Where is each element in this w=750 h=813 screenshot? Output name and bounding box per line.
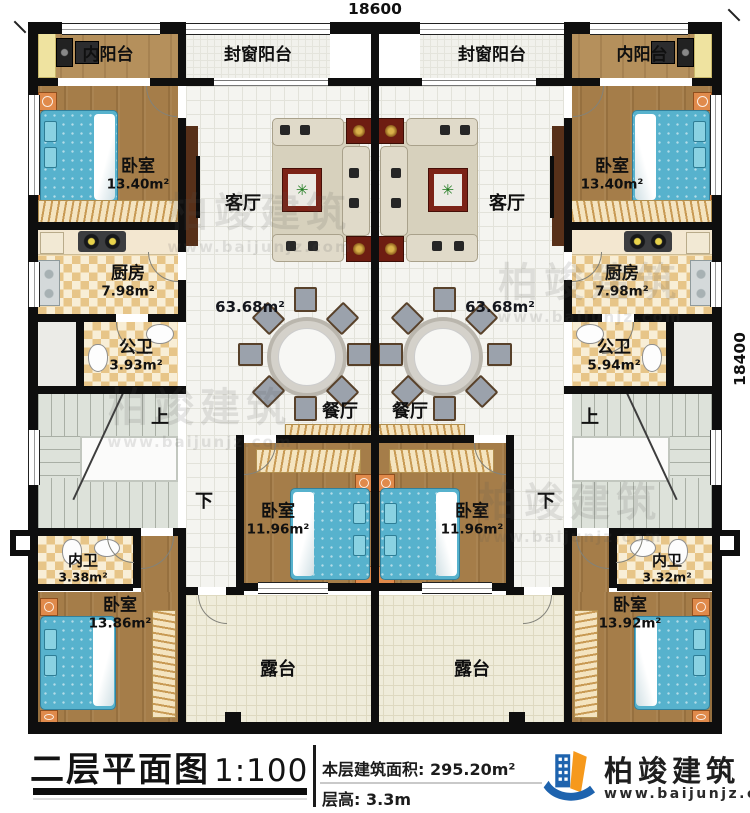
wall xyxy=(133,536,141,588)
wall-pier xyxy=(509,712,525,724)
wall xyxy=(173,528,186,536)
title-underline-light xyxy=(33,798,307,800)
washing-machine-icon xyxy=(56,38,73,67)
wall xyxy=(236,583,258,591)
wall xyxy=(178,280,186,314)
wall xyxy=(492,583,514,591)
wall xyxy=(536,78,564,86)
wall xyxy=(38,78,58,86)
wall xyxy=(564,314,602,322)
side-table xyxy=(378,236,404,262)
wall xyxy=(328,78,375,86)
nightstand xyxy=(692,598,710,616)
bed xyxy=(632,110,710,204)
wall xyxy=(76,322,84,386)
floor-height-row: 层高: 3.3m xyxy=(322,786,411,810)
window xyxy=(62,23,160,35)
plan-scale: 1:100 xyxy=(214,753,308,789)
wall xyxy=(28,386,186,394)
window xyxy=(590,23,688,35)
floor-area-row: 本层建筑面积: 295.20m² xyxy=(322,756,515,780)
wall xyxy=(564,280,572,314)
kitchen-sink-icon xyxy=(38,260,60,306)
wall xyxy=(375,435,474,443)
stairs-down-label: 下 xyxy=(195,491,213,513)
balcony-cabinet xyxy=(38,32,56,78)
stove-icon xyxy=(78,231,126,252)
side-table xyxy=(346,236,372,262)
wall xyxy=(28,722,375,734)
room-label-ensuite-bath: 内卫 3.38m² xyxy=(58,552,107,585)
wall xyxy=(328,583,375,591)
sofa xyxy=(406,234,478,262)
sofa-pillow xyxy=(349,198,359,208)
wall xyxy=(564,536,572,732)
wall xyxy=(38,314,116,322)
company-logo-icon xyxy=(542,746,600,804)
room-label-inner-balcony: 内阳台 xyxy=(617,45,668,65)
stairs-steps xyxy=(670,436,712,478)
dimension-tick xyxy=(14,21,27,34)
nightstand xyxy=(38,92,57,111)
sofa-pillow xyxy=(454,241,464,251)
sofa-pillow xyxy=(391,168,401,178)
window xyxy=(710,262,722,307)
sofa-pillow xyxy=(308,241,318,251)
window xyxy=(28,95,40,195)
stairs-down-label: 下 xyxy=(537,491,555,513)
coffee-table: ✳ xyxy=(282,168,322,212)
toilet-icon xyxy=(642,344,662,372)
side-table xyxy=(378,118,404,144)
wall xyxy=(178,118,186,230)
stairs-up-label: 上 xyxy=(581,407,599,429)
plant-icon: ✳ xyxy=(442,181,455,199)
window xyxy=(710,430,722,485)
sofa-pillow xyxy=(391,198,401,208)
dimension-top: 18600 xyxy=(300,0,450,18)
stairs-steps xyxy=(38,478,178,528)
company-url: www.baijunjz.com xyxy=(604,786,750,802)
sofa-pillow xyxy=(300,125,310,135)
wall-pier xyxy=(225,712,241,724)
room-label-floor-area: 63.68m² xyxy=(215,298,285,316)
wall xyxy=(564,118,572,230)
wall xyxy=(186,587,198,595)
wall xyxy=(28,528,141,536)
plan-title-text: 二层平面图 xyxy=(30,750,210,790)
sofa-pillow xyxy=(349,168,359,178)
wall xyxy=(564,222,712,230)
floor-area-value: 295.20m² xyxy=(430,760,515,779)
wall xyxy=(609,528,722,536)
room-label-inner-balcony: 内阳台 xyxy=(83,45,134,65)
balcony-cabinet xyxy=(694,32,712,78)
room-label-public-bath: 公卫 3.93m² xyxy=(109,338,162,375)
sofa-pillow xyxy=(280,125,290,135)
wall xyxy=(375,583,422,591)
wall xyxy=(506,435,514,595)
unit-left: ✳ xyxy=(28,22,375,740)
room-label-dining: 餐厅 xyxy=(392,401,428,423)
room-label-window-balcony: 封窗阳台 xyxy=(224,45,292,65)
room-label-kitchen: 厨房 7.98m² xyxy=(101,264,154,301)
party-wall xyxy=(371,22,379,734)
room-label-public-bath: 公卫 5.94m² xyxy=(587,338,640,375)
room-label-window-balcony: 封窗阳台 xyxy=(458,45,526,65)
wall xyxy=(375,78,422,86)
wall xyxy=(178,230,186,252)
wall xyxy=(564,386,722,394)
dining-chair xyxy=(294,396,317,421)
wall xyxy=(148,314,186,322)
room-label-dining: 餐厅 xyxy=(322,401,358,423)
toilet-icon xyxy=(88,344,108,372)
kitchen-sink-icon xyxy=(690,260,712,306)
wall xyxy=(514,587,524,595)
sliding-window xyxy=(422,80,536,86)
dimension-right: 18400 xyxy=(731,321,749,397)
company-name: 柏竣建筑 xyxy=(604,748,740,790)
wall xyxy=(564,230,572,252)
coffee-table: ✳ xyxy=(428,168,468,212)
window xyxy=(258,582,328,594)
stairs-steps xyxy=(572,478,712,528)
wall xyxy=(564,528,577,536)
wall xyxy=(692,78,712,86)
title-underline xyxy=(33,788,307,795)
wall xyxy=(226,587,236,595)
room-label-ensuite-bath: 内卫 3.32m² xyxy=(642,552,691,585)
room-label-bedroom-mid: 卧室 11.96m² xyxy=(247,502,310,539)
room-label-living: 客厅 xyxy=(489,193,525,215)
floor-height-label: 层高: xyxy=(322,790,360,809)
wall xyxy=(666,322,674,386)
room-label-bedroom-top: 卧室 13.40m² xyxy=(581,157,644,194)
wall xyxy=(178,536,186,732)
dining-chair xyxy=(294,287,317,312)
company-logo: 柏竣建筑 www.baijunjz.com xyxy=(540,744,746,808)
sliding-window xyxy=(214,80,328,86)
sofa-pillow xyxy=(440,125,450,135)
dimension-tick xyxy=(728,9,741,22)
window xyxy=(28,430,40,485)
plant-icon: ✳ xyxy=(296,181,309,199)
room-label-bedroom-top: 卧室 13.40m² xyxy=(107,157,170,194)
dining-chair xyxy=(433,287,456,312)
room-label-living: 客厅 xyxy=(225,193,261,215)
unit-right: ✳ xyxy=(375,22,722,740)
wall xyxy=(38,584,133,591)
stairs-up-label: 上 xyxy=(151,407,169,429)
wall xyxy=(276,435,375,443)
wall xyxy=(617,584,712,591)
wall xyxy=(564,78,600,86)
stairs-steps xyxy=(38,436,80,478)
wall xyxy=(375,722,722,734)
wall xyxy=(552,587,564,595)
sofa xyxy=(380,146,408,236)
info-divider xyxy=(320,782,542,784)
wall xyxy=(150,78,186,86)
room-label-bedroom-bottom: 卧室 13.92m² xyxy=(599,596,662,633)
window xyxy=(186,23,330,35)
room-label-bedroom-bottom: 卧室 13.86m² xyxy=(89,596,152,633)
plan-title: 二层平面图1:100 xyxy=(30,742,308,791)
wall xyxy=(186,78,214,86)
window xyxy=(420,23,564,35)
dining-chair xyxy=(487,343,512,366)
tv-icon xyxy=(196,156,200,218)
fridge-icon xyxy=(686,232,710,254)
wall xyxy=(330,22,375,34)
wall xyxy=(236,435,244,595)
sofa-pillow xyxy=(460,125,470,135)
window xyxy=(422,582,492,594)
room-label-bedroom-mid: 卧室 11.96m² xyxy=(441,502,504,539)
window xyxy=(710,95,722,195)
stove-icon xyxy=(624,231,672,252)
dining-chair xyxy=(378,343,403,366)
room-label-terrace: 露台 xyxy=(454,659,490,681)
room-label-kitchen: 厨房 7.98m² xyxy=(595,264,648,301)
dining-chair xyxy=(433,396,456,421)
closet xyxy=(574,610,598,718)
floor-plan-canvas: ✳ xyxy=(0,0,750,813)
wall xyxy=(634,314,712,322)
fridge-icon xyxy=(40,232,64,254)
dining-chair xyxy=(238,343,263,366)
shaft xyxy=(38,322,76,386)
floor-area-label: 本层建筑面积: xyxy=(322,760,424,779)
title-separator xyxy=(313,745,316,807)
window xyxy=(28,262,40,307)
shaft xyxy=(674,322,712,386)
room-label-floor-area: 63.68m² xyxy=(465,298,535,316)
closet xyxy=(152,610,176,718)
sofa-pillow xyxy=(286,241,296,251)
wall xyxy=(375,22,420,34)
stairs-landing xyxy=(572,436,670,482)
nightstand xyxy=(40,598,58,616)
sofa-pillow xyxy=(432,241,442,251)
stairs-landing xyxy=(80,436,178,482)
tv-icon xyxy=(550,156,554,218)
side-table xyxy=(346,118,372,144)
washing-machine-icon xyxy=(677,38,694,67)
floor-height-value: 3.3m xyxy=(366,790,411,809)
sofa xyxy=(342,146,370,236)
room-label-terrace: 露台 xyxy=(260,659,296,681)
dining-chair xyxy=(347,343,372,366)
wall xyxy=(38,222,186,230)
